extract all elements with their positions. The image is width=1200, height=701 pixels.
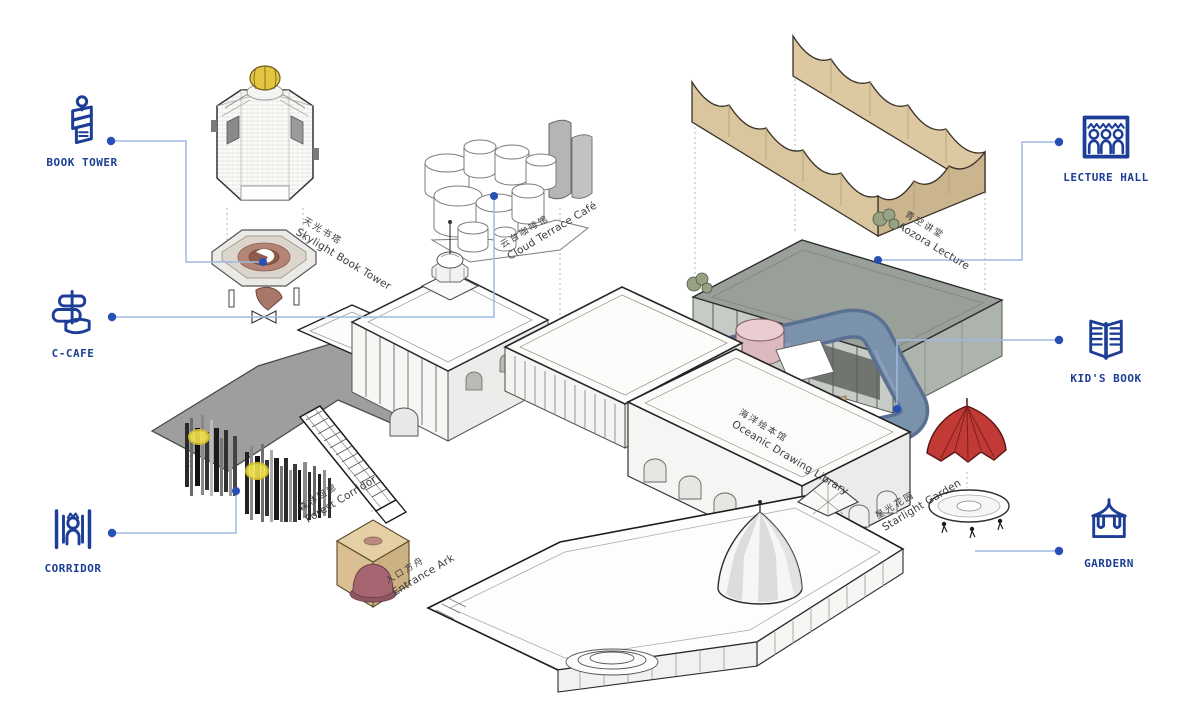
connector-corridor bbox=[112, 491, 236, 533]
c-cafe-icon bbox=[46, 286, 100, 342]
building-illustration bbox=[0, 0, 1200, 701]
corridor-icon bbox=[47, 503, 99, 557]
gardern-icon bbox=[1082, 496, 1136, 552]
book-tower-model bbox=[211, 66, 319, 323]
book-tower-icon bbox=[54, 93, 110, 151]
lecture-hall-icon bbox=[1077, 110, 1135, 166]
legend-label-c-cafe: C-CAFE bbox=[52, 347, 95, 360]
legend-gardern: GARDERN bbox=[1072, 496, 1146, 570]
legend-book-tower: BOOK TOWER bbox=[44, 93, 120, 169]
red-tent bbox=[927, 406, 1006, 462]
legend-label-book-tower: BOOK TOWER bbox=[46, 156, 117, 169]
legend-c-cafe: C-CAFE bbox=[38, 286, 108, 360]
legend-label-corridor: CORRIDOR bbox=[45, 562, 102, 575]
yellow-lamp bbox=[246, 463, 268, 479]
exploded-axonometric-diagram: BOOK TOWER C-CAFE CORRIDOR bbox=[0, 0, 1200, 701]
legend-kids-book: KID'S BOOK bbox=[1062, 313, 1150, 385]
spiral-stair bbox=[256, 287, 282, 310]
legend-label-lecture-hall: LECTURE HALL bbox=[1063, 171, 1148, 184]
legend-label-gardern: GARDERN bbox=[1084, 557, 1134, 570]
aozora-canopy-model bbox=[692, 36, 985, 236]
kids-book-icon bbox=[1078, 313, 1134, 367]
legend-corridor: CORRIDOR bbox=[40, 503, 106, 575]
yellow-lamp bbox=[189, 430, 209, 444]
legend-label-kids-book: KID'S BOOK bbox=[1070, 372, 1141, 385]
tower-body bbox=[217, 90, 313, 200]
starlight-garden-model bbox=[927, 398, 1009, 538]
legend-lecture-hall: LECTURE HALL bbox=[1060, 110, 1152, 184]
